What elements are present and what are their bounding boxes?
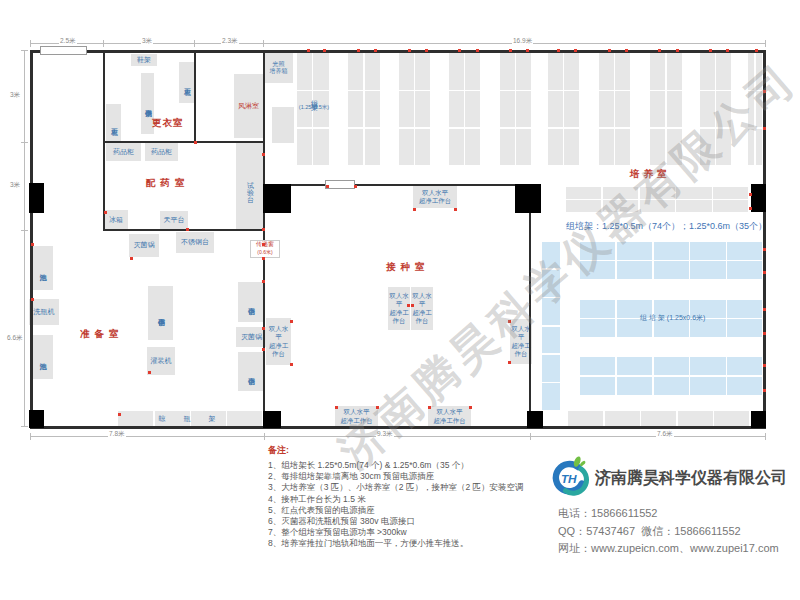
power-outlet-dot [763, 90, 766, 93]
blue-rack-label: 组 培 架 (1.25x0.6米) [640, 313, 705, 323]
dimension-label: 3米 [9, 181, 21, 190]
furniture-box: 鞋架 [131, 54, 157, 66]
power-outlet-dot [408, 49, 411, 52]
room-label: 配药室 [146, 177, 190, 190]
power-outlet-dot [763, 308, 766, 311]
power-outlet-dot [290, 363, 293, 366]
furniture-label: 灭菌锅 [241, 333, 262, 342]
power-outlet-dot [508, 320, 511, 323]
structural-column [515, 184, 541, 213]
power-outlet-dot [262, 280, 265, 283]
power-outlet-dot [425, 49, 428, 52]
shelf-rack [568, 411, 751, 427]
power-outlet-dot [676, 49, 679, 52]
note-line: 7、整个组培室预留电源功率 >300kw [268, 527, 560, 538]
shelf-rack-label: 晾 瓶 架 [118, 411, 264, 427]
power-outlet-dot [31, 298, 34, 301]
power-outlet-dot [574, 49, 577, 52]
power-outlet-dot [326, 185, 329, 188]
notes-title: 备注: [268, 444, 560, 457]
rack-column-label: 组培架(1.25x0.5米) [293, 86, 335, 111]
dimension-label: 7.6米 [656, 430, 674, 439]
furniture-label: 灌装机 [151, 357, 172, 366]
qq-value: 57437467 [586, 525, 635, 537]
power-outlet-dot [476, 49, 479, 52]
dimension-tick [21, 426, 28, 427]
furniture-box: 光照 培养箱 [264, 53, 293, 83]
power-outlet-dot [407, 304, 410, 307]
structural-column [751, 411, 766, 428]
furniture-box: 更衣柜 [179, 62, 194, 103]
door [40, 46, 87, 55]
dimension-tick [103, 40, 104, 47]
culture-rack-column [348, 52, 381, 165]
web-value: www.zupeicn.com、www.zupei17.com [591, 542, 779, 554]
company-contact: 电话：15866611552 QQ：57437467 微信：1586661155… [558, 505, 790, 558]
shelf-rack [580, 356, 764, 395]
dimension-label: 16.9米 [512, 37, 533, 46]
wall [104, 141, 264, 143]
dimension-tick [21, 230, 28, 231]
furniture-label: 洗瓶机 [34, 308, 55, 317]
culture-rack-column [399, 52, 432, 165]
power-outlet-dot [194, 141, 197, 144]
wall [30, 50, 33, 429]
wall [264, 184, 530, 186]
dimension-tick [21, 142, 28, 143]
power-outlet-dot [763, 271, 766, 274]
furniture-box: 试验台 [236, 142, 263, 230]
power-outlet-dot [104, 211, 107, 214]
power-outlet-dot [608, 49, 611, 52]
furniture-box: 泡瓶池 [31, 335, 53, 379]
power-outlet-dot [323, 49, 326, 52]
power-outlet-dot [262, 257, 265, 260]
note-line: 1、组培架长 1.25*0.5m(74 个) & 1.25*0.6m（35 个） [268, 460, 560, 471]
power-outlet-dot [454, 208, 457, 211]
power-outlet-dot [262, 327, 265, 330]
dimension-tick [30, 433, 31, 440]
power-outlet-dot [709, 49, 712, 52]
culture-rack-column [748, 52, 764, 165]
note-line: 4、接种工作台长为 1.5 米 [268, 494, 560, 505]
furniture-label: 冰箱 [109, 216, 123, 225]
wall [763, 50, 766, 429]
dimension-label: 2.5米 [59, 37, 77, 46]
power-outlet-dot [290, 320, 293, 323]
shelf-rack [542, 240, 560, 410]
dimension-tick [530, 433, 531, 440]
structural-column [751, 184, 766, 212]
wall [529, 185, 531, 428]
furniture-box: 双人水平 超净工作台 [266, 318, 291, 365]
power-outlet-dot [509, 49, 512, 52]
furniture-box: 双人水平 超净工作台 [411, 287, 433, 330]
power-outlet-dot [763, 332, 766, 335]
furniture-label: 不锈钢台 [181, 238, 209, 247]
note-line: 5、红点代表预留的电源插座 [268, 505, 560, 516]
floor-plan: 晾 瓶 架鞋架更衣柜不锈钢条凳更衣柜风淋室药品柜药品柜试验台冰箱天平台灭菌锅不锈… [0, 0, 800, 450]
power-outlet-dot [262, 243, 265, 246]
power-outlet-dot [526, 49, 529, 52]
power-outlet-dot [508, 361, 511, 364]
phone-value: 15866611552 [591, 507, 657, 519]
furniture-label: 灭菌锅 [134, 241, 155, 250]
dimension-label: 3米 [9, 91, 21, 100]
furniture-label: 双人水平 超净工作台 [340, 408, 373, 424]
company-logo-icon: TH [550, 455, 590, 501]
power-outlet-dot [469, 406, 472, 409]
culture-rack-column [650, 52, 683, 165]
power-outlet-dot [428, 406, 431, 409]
furniture-box: 不锈钢台 [238, 352, 263, 391]
power-outlet-dot [374, 49, 377, 52]
culture-rack-column [700, 52, 733, 165]
dimension-label: 7.8米 [108, 430, 126, 439]
company-web-line: 网址：www.zupeicn.com、www.zupei17.com [558, 540, 790, 558]
furniture-box: 泡瓶池 [31, 246, 53, 290]
furniture-box: 更衣柜 [106, 104, 121, 142]
door [325, 180, 355, 189]
furniture-label: 风淋室 [238, 102, 259, 111]
room-label: 接种室 [386, 261, 430, 274]
power-outlet-dot [354, 185, 357, 188]
power-outlet-dot [726, 49, 729, 52]
furniture-box: 天平台 [160, 211, 188, 229]
company-logo-text: TH [561, 472, 577, 486]
power-outlet-dot [763, 248, 766, 251]
furniture-box: 药品柜 [145, 143, 178, 161]
dimension-label: 2.3米 [221, 37, 239, 46]
notes-section: 备注: 1、组培架长 1.25*0.5m(74 个) & 1.25*0.6m（3… [268, 444, 560, 550]
note-line: 3、大培养室（3 匹）、小培养室（2 匹），接种室（2 匹）安装空调 [268, 482, 560, 493]
page: 晾 瓶 架鞋架更衣柜不锈钢条凳更衣柜风淋室药品柜药品柜试验台冰箱天平台灭菌锅不锈… [0, 0, 800, 600]
note-line: 8、培养室推拉门地轨和地面一平，方便小推车推送。 [268, 538, 560, 549]
furniture-label: 药品柜 [151, 148, 172, 157]
power-outlet-dot [376, 406, 379, 409]
power-outlet-dot [411, 304, 414, 307]
furniture-box: 不锈钢工作台 [148, 286, 173, 340]
power-outlet-dot [755, 49, 758, 52]
power-outlet-dot [763, 364, 766, 367]
wall [104, 229, 264, 231]
power-outlet-dot [357, 49, 360, 52]
power-outlet-dot [763, 127, 766, 130]
equipment-box [272, 107, 294, 143]
dimension-tick [21, 50, 28, 51]
power-outlet-dot [413, 208, 416, 211]
company-phone-line: 电话：15866611552 [558, 505, 790, 523]
company-header: TH 济南腾昊科学仪器有限公司 [550, 455, 790, 501]
wall [30, 50, 766, 53]
company-info: TH 济南腾昊科学仪器有限公司 电话：15866611552 QQ：574374… [550, 455, 790, 558]
power-outlet-dot [31, 243, 34, 246]
structural-column [527, 411, 543, 428]
room-label: 培养室 [630, 168, 671, 181]
company-qq-line: QQ：57437467 微信：15866611552 [558, 523, 790, 541]
dimension-label: 9.3米 [376, 430, 394, 439]
qq-label: QQ： [558, 525, 586, 537]
structural-column [263, 184, 291, 213]
culture-rack-column [500, 52, 533, 165]
dimension-label: 6.6米 [6, 334, 24, 343]
dimension-tick [30, 40, 31, 47]
shelf-rack: 晾 瓶 架 [118, 411, 264, 427]
furniture-label: 鞋架 [137, 56, 151, 65]
wechat-value: 15866611552 [674, 525, 740, 537]
note-line: 2、每排组培架靠墙离地 30cm 预留电源插座 [268, 471, 560, 482]
furniture-box: 灌装机 [147, 347, 175, 375]
furniture-box: 双人水平 超净工作台 [388, 287, 410, 330]
furniture-label: 双人水平 超净工作台 [411, 292, 433, 325]
culture-rack-column [548, 52, 581, 165]
structural-column [29, 410, 44, 428]
power-outlet-dot [262, 228, 265, 231]
furniture-label: 双人水平 超净工作台 [419, 189, 452, 205]
dimension-tick [263, 40, 264, 47]
power-outlet-dot [625, 49, 628, 52]
furniture-box: 双人水平 超净工作台 [428, 406, 471, 427]
furniture-box: 不锈钢台 [176, 232, 214, 253]
culture-rack-column [449, 52, 482, 165]
structural-column [263, 411, 281, 428]
furniture-label: 天平台 [164, 216, 185, 225]
furniture-box: 双人水平 超净工作台 [413, 186, 457, 208]
power-outlet-dot [749, 207, 752, 210]
furniture-label: 药品柜 [113, 148, 134, 157]
power-outlet-dot [658, 49, 661, 52]
room-label: 准备室 [80, 328, 124, 341]
company-name: 济南腾昊科学仪器有限公司 [595, 468, 787, 489]
power-outlet-dot [763, 389, 766, 392]
power-outlet-dot [186, 228, 189, 231]
structural-column [29, 183, 44, 213]
rack-label-main: 组培架 [309, 94, 319, 100]
furniture-box: 冰箱 [104, 210, 128, 230]
furniture-box: 灭菌锅 [129, 234, 159, 257]
furniture-label: 试验台 [245, 176, 254, 197]
shelf-rack [580, 240, 764, 279]
furniture-label: 光照 培养箱 [270, 61, 288, 76]
dimension-tick [264, 433, 265, 440]
pass-window: 传递窗(0.6米) [250, 240, 280, 258]
power-outlet-dot [130, 257, 133, 260]
furniture-box: 洗瓶机 [29, 299, 59, 325]
room-label: 更衣室 [152, 117, 184, 130]
rack-label-size: (1.25x0.5米) [293, 104, 335, 111]
rack-count-annotation: 组培架：1.25*0.5m（74个）；1.25*0.6m（35个） [566, 220, 767, 233]
furniture-label: 双人水平 超净工作台 [388, 292, 410, 325]
power-outlet-dot [118, 413, 121, 416]
power-outlet-dot [307, 49, 310, 52]
dimension-label: 3米 [141, 37, 153, 46]
power-outlet-dot [262, 348, 265, 351]
wall [194, 50, 196, 143]
furniture-label: 双人水平 超净工作台 [433, 408, 466, 424]
pass-window-size: (0.6米) [251, 249, 279, 255]
power-outlet-dot [557, 49, 560, 52]
phone-label: 电话： [558, 507, 591, 519]
note-line: 6、灭菌器和洗瓶机预留 380v 电源接口 [268, 516, 560, 527]
power-outlet-dot [335, 406, 338, 409]
dimension-line [24, 50, 25, 427]
furniture-label: 双人水平 超净工作台 [266, 325, 291, 358]
power-outlet-dot [458, 49, 461, 52]
power-outlet-dot [262, 153, 265, 156]
furniture-box: 双人水平 超净工作台 [335, 406, 378, 427]
dimension-tick [765, 433, 766, 440]
power-outlet-dot [749, 193, 752, 196]
power-outlet-dot [148, 371, 151, 374]
furniture-box: 药品柜 [106, 143, 141, 161]
dimension-tick [765, 40, 766, 47]
notes-list: 1、组培架长 1.25*0.5m(74 个) & 1.25*0.6m（35 个）… [268, 460, 560, 550]
web-label: 网址： [558, 542, 591, 554]
furniture-box: 风淋室 [234, 74, 263, 138]
wall [30, 426, 766, 429]
pass-window-label: 传递窗 [251, 241, 279, 249]
culture-rack-column [599, 52, 632, 165]
furniture-box: 不锈钢台 [238, 282, 263, 322]
wechat-label: 微信： [641, 525, 674, 537]
shelf-rack [566, 185, 750, 212]
dimension-tick [194, 40, 195, 47]
